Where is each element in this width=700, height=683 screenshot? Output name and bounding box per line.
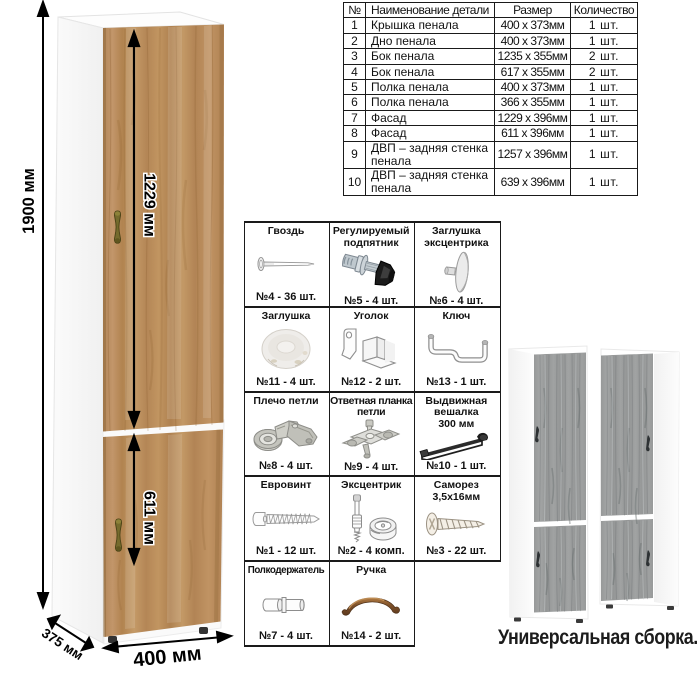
- svg-text:375 мм: 375 мм: [39, 625, 86, 663]
- svg-text:611 мм: 611 мм: [141, 491, 158, 545]
- svg-text:400 мм: 400 мм: [132, 643, 202, 672]
- svg-text:1229 мм: 1229 мм: [141, 173, 158, 237]
- svg-text:1900 мм: 1900 мм: [20, 168, 38, 234]
